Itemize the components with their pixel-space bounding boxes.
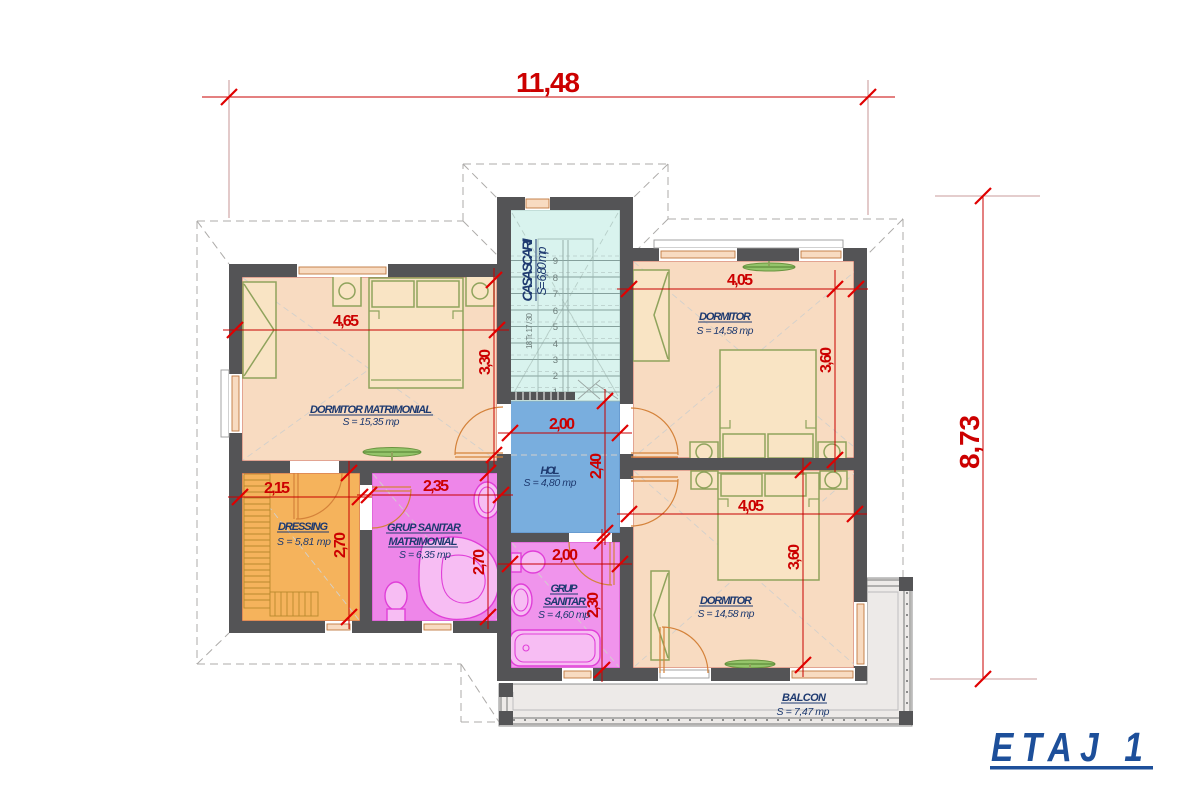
svg-text:S= 6,80 mp: S= 6,80 mp [535, 246, 549, 295]
svg-text:2,70: 2,70 [332, 532, 349, 558]
svg-text:SANITAR: SANITAR [544, 596, 586, 608]
svg-text:3: 3 [553, 355, 558, 366]
svg-text:3,60: 3,60 [786, 544, 803, 570]
svg-text:S = 15,35 mp: S = 15,35 mp [343, 416, 400, 428]
svg-text:3,60: 3,60 [818, 347, 835, 373]
svg-text:2: 2 [553, 371, 558, 382]
svg-text:6: 6 [553, 306, 558, 317]
svg-text:4,05: 4,05 [727, 272, 753, 289]
svg-text:S = 4,60 mp: S = 4,60 mp [538, 609, 590, 621]
svg-text:BALCON: BALCON [782, 692, 827, 704]
svg-text:8,73: 8,73 [954, 415, 985, 469]
svg-text:GRUP SANITAR: GRUP SANITAR [387, 522, 461, 534]
svg-text:2,00: 2,00 [552, 547, 578, 564]
svg-text:S = 14,58 mp: S = 14,58 mp [698, 608, 755, 620]
svg-text:DORMITOR MATRIMONIAL: DORMITOR MATRIMONIAL [310, 404, 432, 416]
svg-text:4,05: 4,05 [738, 498, 764, 515]
svg-text:2,40: 2,40 [588, 453, 605, 479]
svg-text:7: 7 [553, 289, 558, 300]
svg-text:S = 7,47 mp: S = 7,47 mp [777, 706, 830, 718]
svg-text:MATRIMONIAL: MATRIMONIAL [389, 536, 458, 548]
svg-text:DRESSING: DRESSING [278, 521, 328, 533]
svg-text:11,48: 11,48 [516, 67, 580, 98]
svg-text:2,35: 2,35 [423, 478, 449, 495]
svg-text:2,00: 2,00 [549, 416, 575, 433]
svg-text:8: 8 [553, 273, 558, 284]
svg-text:HOL: HOL [541, 465, 560, 477]
svg-text:9: 9 [553, 256, 558, 267]
svg-text:3,30: 3,30 [477, 349, 494, 375]
svg-text:S = 4,80 mp: S = 4,80 mp [524, 477, 577, 489]
svg-text:S = 6,35 mp: S = 6,35 mp [399, 549, 451, 561]
svg-text:2,70: 2,70 [471, 549, 488, 575]
svg-text:18 Tr. 17 / 30: 18 Tr. 17 / 30 [525, 312, 534, 349]
svg-text:ETAJ 1: ETAJ 1 [991, 724, 1151, 770]
svg-text:S = 5,81 mp: S = 5,81 mp [277, 536, 331, 548]
svg-text:5: 5 [553, 322, 558, 333]
svg-text:4,65: 4,65 [333, 313, 359, 330]
svg-text:DORMITOR: DORMITOR [699, 311, 751, 323]
svg-text:CASA SCARII: CASA SCARII [519, 237, 535, 301]
svg-text:DORMITOR: DORMITOR [700, 595, 752, 607]
svg-text:4: 4 [553, 339, 558, 350]
svg-text:2,15: 2,15 [264, 480, 290, 497]
svg-text:S = 14,58 mp: S = 14,58 mp [697, 325, 754, 337]
svg-text:GRUP: GRUP [551, 583, 579, 595]
